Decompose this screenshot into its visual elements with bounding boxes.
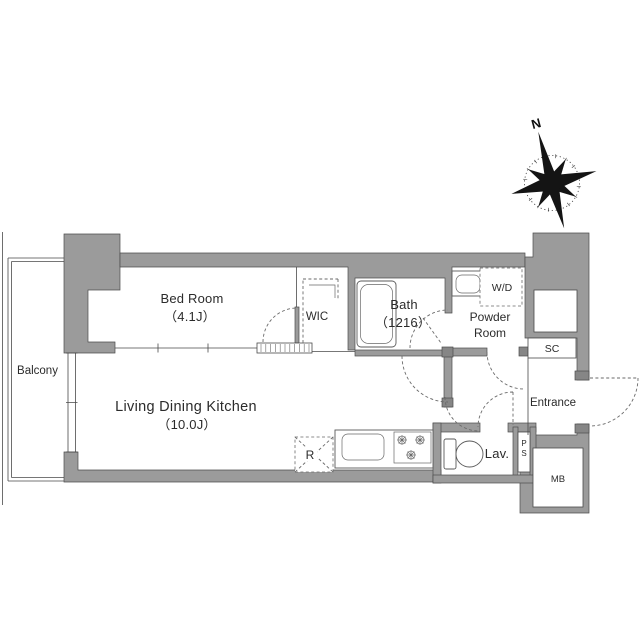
jamb-entrance-bottom — [575, 424, 589, 433]
wall-lav-ps — [513, 427, 518, 477]
jamb-entrance-top — [575, 371, 589, 380]
compass-cardinal-points — [498, 120, 609, 239]
wall-powder-south — [452, 348, 487, 356]
powder-door-arc[interactable] — [487, 352, 524, 389]
pipe-space-letter-p: P — [521, 439, 526, 448]
entrance-door-arc[interactable] — [590, 378, 638, 426]
bedroom-door-arc[interactable] — [263, 308, 297, 342]
threshold-hatch — [257, 343, 312, 353]
ldk-size-label: （10.0J） — [157, 417, 216, 432]
wall-bath-south — [355, 350, 452, 356]
powder-room-label-line2: Room — [474, 326, 506, 340]
floor-plan-page: N Balcony Bed Room （4.1J） WIC Bath （1216… — [0, 0, 640, 640]
lav-label: Lav. — [485, 446, 509, 461]
post-hall-bottom — [442, 398, 453, 407]
bathtub-icon — [357, 281, 396, 347]
balcony-label: Balcony — [17, 365, 58, 377]
wall-lav-west — [433, 423, 441, 483]
threshold-box — [257, 343, 312, 353]
balcony-window[interactable] — [66, 353, 78, 452]
post-powder-door — [519, 347, 528, 356]
refrigerator-label: R — [306, 448, 315, 462]
compass-rose: N — [494, 104, 609, 239]
compass-north-label: N — [530, 115, 543, 132]
washer-dryer-label: W/D — [492, 282, 513, 294]
wic-label: WIC — [306, 311, 328, 323]
ldk-label: Living Dining Kitchen — [115, 399, 257, 415]
wic-hanger-pipe — [309, 285, 335, 298]
lav-door-arc[interactable] — [478, 392, 513, 427]
bath-label: Bath — [390, 297, 418, 312]
bedroom-size-label: （4.1J） — [164, 309, 216, 324]
wic-door-leaf — [295, 307, 299, 343]
meter-box-label: MB — [551, 474, 565, 485]
wall-top-left-block — [64, 234, 120, 353]
wall-lav-south — [433, 475, 536, 483]
entrance-label: Entrance — [530, 397, 576, 409]
bedroom-label: Bed Room — [160, 291, 223, 306]
bath-size-label: （1216） — [375, 315, 431, 330]
powder-room-label-line1: Powder — [470, 310, 511, 324]
exterior-void-box — [534, 290, 577, 332]
post-hall-top — [442, 347, 453, 357]
pipe-space-letter-s: S — [521, 449, 526, 458]
shoe-closet-label: SC — [545, 343, 560, 355]
floor-plan-drawing: N Balcony Bed Room （4.1J） WIC Bath （1216… — [0, 0, 640, 640]
ldk-hall-door-arc[interactable] — [402, 356, 448, 402]
toilet-icon — [444, 439, 483, 469]
